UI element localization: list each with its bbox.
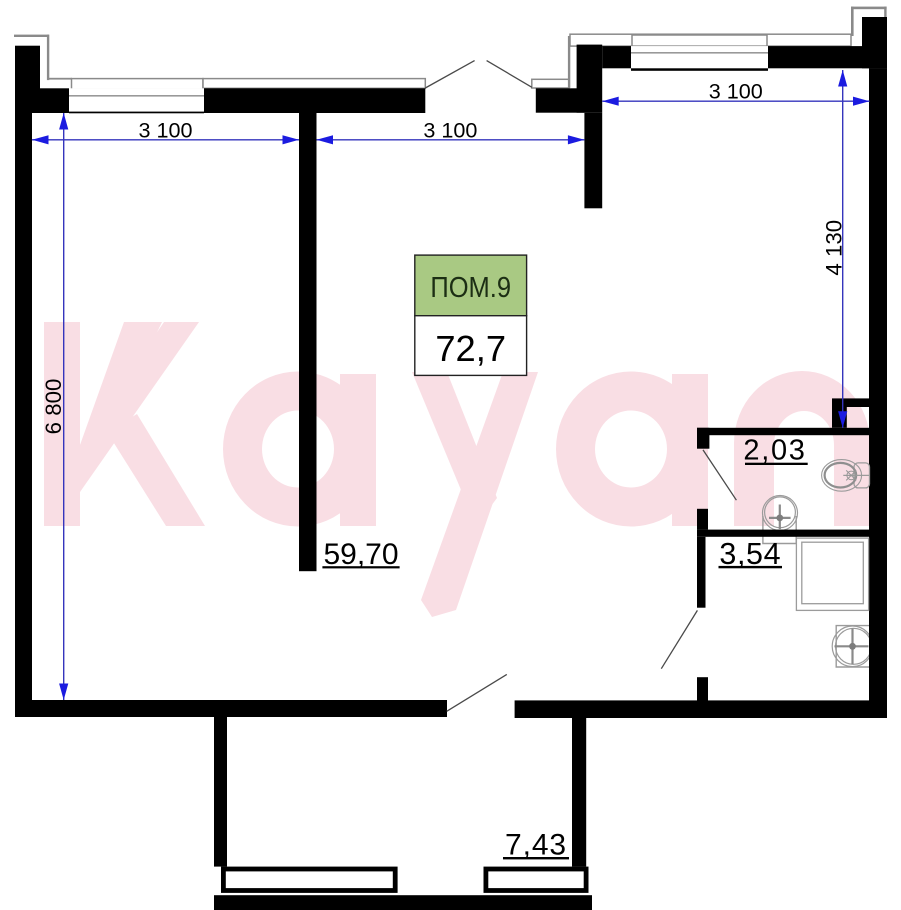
svg-text:3 100: 3 100 bbox=[138, 117, 192, 142]
svg-text:3 100: 3 100 bbox=[423, 117, 477, 142]
svg-text:2,03: 2,03 bbox=[743, 434, 806, 466]
svg-text:3 100: 3 100 bbox=[709, 79, 763, 104]
svg-text:ПОМ.9: ПОМ.9 bbox=[430, 271, 511, 304]
svg-text:6 800: 6 800 bbox=[41, 379, 66, 435]
svg-text:72,7: 72,7 bbox=[435, 328, 506, 369]
svg-text:4 130: 4 130 bbox=[821, 220, 846, 276]
svg-text:7,43: 7,43 bbox=[505, 829, 567, 862]
svg-text:59,70: 59,70 bbox=[323, 538, 398, 571]
